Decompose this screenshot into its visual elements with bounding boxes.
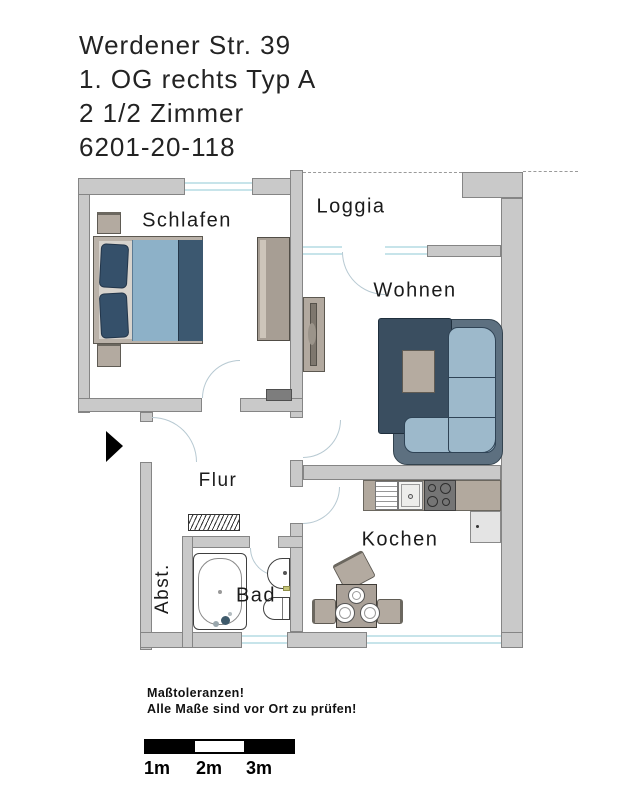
- kochen-door-arc: [303, 487, 340, 524]
- bath-accessory-dot: [228, 612, 232, 616]
- plate: [360, 603, 380, 623]
- burner-icon: [440, 483, 451, 494]
- window-kochen: [367, 635, 501, 644]
- wall-schlafen-bottom-left: [78, 398, 202, 412]
- note-line-2: Alle Maße sind vor Ort zu prüfen!: [147, 702, 357, 718]
- room-label-flur: Flur: [199, 470, 238, 492]
- wall-loggia-right: [427, 245, 501, 257]
- sofa-blue-right-section: [448, 327, 496, 453]
- room-label-bad: Bad: [236, 585, 276, 608]
- title-street: Werdener Str. 39: [79, 28, 316, 62]
- bed-blanket-dark: [178, 240, 203, 341]
- room-label-loggia: Loggia: [316, 196, 385, 219]
- wall-bad-top-stub: [278, 536, 303, 548]
- scale-segment-black: [244, 741, 293, 752]
- room-label-schlafen: Schlafen: [142, 210, 232, 233]
- wall-left-upper: [78, 178, 90, 413]
- kitchen-sink: [398, 481, 423, 510]
- room-label-wohnen: Wohnen: [373, 280, 456, 303]
- toilet-tank-line: [282, 598, 283, 619]
- plate: [335, 603, 355, 623]
- window-schlafen: [185, 182, 252, 191]
- bed-blanket-light: [132, 240, 178, 341]
- wall-central-upper: [290, 170, 303, 418]
- wall-bottom-mid: [287, 632, 367, 648]
- bathtub-drain-dot: [218, 590, 222, 594]
- floor-plan-page: Werdener Str. 39 1. OG rechts Typ A 2 1/…: [0, 0, 640, 800]
- dining-chair-left: [312, 599, 336, 624]
- title-plan-number: 6201-20-118: [79, 130, 316, 164]
- tv-board: [303, 297, 325, 372]
- bath-accessory-dot: [221, 616, 230, 625]
- note-line-1: Maßtoleranzen!: [147, 686, 357, 702]
- burner-icon: [427, 496, 438, 507]
- bed-pillow-1: [99, 243, 129, 288]
- wall-bottom-right-corner: [501, 632, 523, 648]
- bed: [93, 236, 203, 344]
- fridge-handle-dot: [476, 525, 479, 528]
- wall-right: [501, 198, 523, 648]
- sofa-cushion-divider: [449, 417, 495, 418]
- window-bad: [242, 635, 287, 644]
- plate: [348, 587, 365, 604]
- wall-bad-left: [182, 536, 193, 648]
- scale-label-3m: 3m: [246, 758, 272, 779]
- scale-label-1m: 1m: [144, 758, 170, 779]
- wall-central-mid: [290, 460, 303, 487]
- wohnen-door-arc: [303, 420, 341, 458]
- room-label-kochen: Kochen: [362, 529, 439, 552]
- schlafen-door-arc: [202, 360, 240, 398]
- tolerance-notes: Maßtoleranzen! Alle Maße sind vor Ort zu…: [147, 686, 357, 717]
- sofa-cushion: [402, 350, 435, 393]
- stove: [424, 480, 456, 511]
- wardrobe-front-edge: [260, 240, 266, 338]
- radiator-flur: [188, 514, 240, 531]
- faucet-icon: [283, 571, 287, 575]
- scale-segment-white: [195, 741, 244, 752]
- scale-bar: [144, 739, 295, 754]
- room-label-abst: Abst.: [152, 550, 180, 628]
- bath-accessory-dot: [213, 621, 219, 627]
- wall-top-left: [78, 178, 185, 195]
- loggia-open-edge-line-ext: [523, 171, 578, 172]
- plan-title-block: Werdener Str. 39 1. OG rechts Typ A 2 1/…: [79, 28, 316, 164]
- burner-icon: [428, 484, 436, 492]
- sink-drainer: [375, 481, 398, 510]
- wall-wohnen-kochen: [303, 465, 501, 480]
- nightstand-top: [97, 212, 121, 234]
- scale-label-2m: 2m: [196, 758, 222, 779]
- faucet-icon: [408, 494, 413, 499]
- fridge: [470, 511, 501, 543]
- entry-door-arc: [152, 417, 197, 462]
- entrance-arrow-icon: [106, 431, 123, 462]
- title-rooms-count: 2 1/2 Zimmer: [79, 96, 316, 130]
- wall-top-mid: [252, 178, 292, 195]
- wall-left-lower: [140, 462, 152, 650]
- wall-block-top-right: [462, 172, 523, 198]
- window-loggia-left: [303, 246, 342, 255]
- soap-dish: [283, 586, 290, 591]
- radiator-schlafen: [266, 389, 292, 401]
- title-floor-type: 1. OG rechts Typ A: [79, 62, 316, 96]
- bed-pillow-2: [99, 292, 129, 338]
- dining-chair-right: [377, 599, 403, 624]
- tv-lens: [308, 323, 316, 345]
- loggia-open-edge-line: [303, 172, 462, 173]
- nightstand-bottom: [97, 343, 121, 367]
- sofa-cushion-divider: [449, 377, 495, 378]
- window-loggia-right: [385, 246, 427, 255]
- burner-icon: [442, 498, 450, 506]
- scale-segment-black: [146, 741, 195, 752]
- wardrobe: [257, 237, 290, 341]
